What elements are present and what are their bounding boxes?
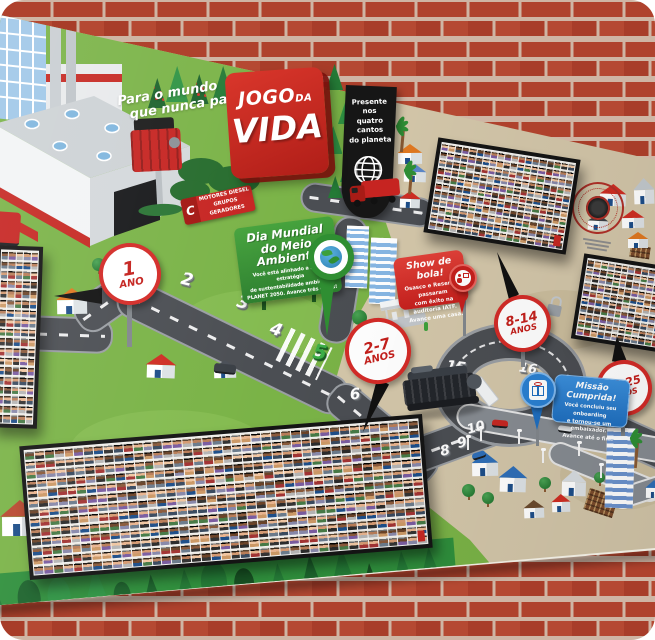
- portrait-photo: [73, 553, 83, 562]
- portrait-photo: [297, 506, 307, 515]
- portrait-photo: [271, 430, 281, 439]
- portrait-photo: [553, 209, 560, 217]
- portrait-photo: [650, 308, 655, 316]
- portrait-photo: [517, 211, 524, 219]
- portrait-photo: [460, 162, 467, 170]
- portrait-photo: [319, 533, 329, 542]
- portrait-photo: [461, 154, 468, 162]
- portrait-photo: [435, 182, 442, 190]
- portrait-photo: [9, 260, 16, 269]
- portrait-photo: [290, 429, 300, 438]
- portrait-photo: [275, 478, 285, 487]
- portrait-photo: [495, 216, 502, 224]
- portrait-photo: [21, 347, 28, 356]
- portrait-photo: [615, 263, 622, 271]
- portrait-photo: [342, 454, 352, 463]
- portrait-photo: [303, 466, 313, 475]
- portrait-photo: [284, 478, 294, 487]
- portrait-photo: [619, 326, 626, 334]
- portrait-photo: [180, 534, 190, 543]
- portrait-photo: [246, 490, 256, 499]
- audit-pin-icon: [449, 264, 477, 292]
- portrait-photo: [597, 331, 604, 339]
- portrait-photo: [55, 457, 65, 466]
- portrait-photo: [187, 495, 197, 504]
- portrait-photo: [102, 550, 112, 559]
- portrait-photo: [538, 166, 545, 174]
- portrait-photo: [324, 474, 334, 483]
- portrait-photo: [468, 155, 475, 163]
- banner-text: Presente nos quatro cantos do planeta: [344, 97, 396, 146]
- portrait-photo: [227, 501, 237, 510]
- portrait-photo: [164, 458, 174, 467]
- portrait-photo: [112, 549, 122, 558]
- portrait-photo: [12, 385, 19, 394]
- event-sign-blue: Missão Cumprida! Você concluiu seu onboa…: [551, 374, 631, 428]
- portrait-photo: [233, 453, 243, 462]
- portrait-photo: [372, 461, 382, 470]
- portrait-photo: [330, 426, 340, 435]
- portrait-photo: [179, 525, 189, 534]
- portrait-photo: [168, 506, 178, 515]
- portrait-photo: [447, 200, 454, 208]
- portrait-photo: [522, 228, 529, 236]
- portrait-photo: [583, 289, 590, 297]
- portrait-photo: [203, 446, 213, 455]
- portrait-photo: [202, 436, 212, 445]
- portrait-photo: [104, 454, 114, 463]
- portrait-photo: [225, 482, 235, 491]
- portrait-photo: [80, 523, 90, 532]
- portrait-photo: [649, 269, 655, 277]
- portrait-photo: [73, 562, 83, 571]
- portrait-photo: [7, 318, 14, 327]
- portrait-photo: [378, 538, 388, 547]
- portrait-photo: [8, 279, 15, 288]
- portrait-photo: [412, 458, 422, 467]
- portrait-photo: [384, 489, 394, 498]
- portrait-photo: [79, 504, 89, 513]
- portrait-photo: [592, 275, 599, 283]
- portrait-photo: [624, 296, 631, 304]
- portrait-photo: [265, 479, 275, 488]
- portrait-photo: [493, 183, 500, 191]
- portrait-photo: [506, 233, 513, 241]
- portrait-photo: [337, 512, 347, 521]
- portrait-photo: [92, 551, 102, 560]
- portrait-photo: [486, 182, 493, 190]
- portrait-photo: [531, 213, 538, 221]
- portrait-photo: [82, 552, 92, 561]
- portrait-photo: [141, 537, 151, 546]
- portrait-photo: [138, 499, 148, 508]
- portrait-photo: [152, 556, 162, 565]
- portrait-photo: [622, 304, 629, 312]
- portrait-photo: [240, 539, 250, 548]
- portrait-photo: [498, 152, 505, 160]
- portrait-photo: [509, 170, 516, 178]
- portrait-photo: [530, 173, 537, 181]
- portrait-photo: [328, 522, 338, 531]
- portrait-photo: [480, 173, 487, 181]
- portrait-photo: [413, 477, 423, 486]
- portrait-photo: [226, 492, 236, 501]
- portrait-photo: [308, 524, 318, 533]
- portrait-photo: [448, 144, 455, 152]
- portrait-photo: [1, 260, 8, 269]
- portrait-photo: [43, 555, 53, 564]
- portrait-photo: [501, 176, 508, 184]
- portrait-photo: [286, 497, 296, 506]
- portrait-photo: [125, 462, 135, 471]
- portrait-photo: [84, 455, 94, 464]
- portrait-photo: [249, 529, 259, 538]
- portrait-photo: [79, 513, 89, 522]
- portrait-photo: [553, 169, 560, 177]
- portrait-photo: [440, 199, 447, 207]
- portrait-photo: [442, 183, 449, 191]
- portrait-photo: [614, 310, 621, 318]
- portrait-photo: [335, 493, 345, 502]
- portrait-photo: [32, 537, 42, 546]
- portrait-photo: [153, 450, 163, 459]
- portrait-photo: [463, 146, 470, 154]
- portrait-photo: [260, 547, 270, 556]
- portrait-photo: [343, 463, 353, 472]
- portrait-photo: [15, 280, 22, 289]
- portrait-photo: [537, 222, 544, 230]
- portrait-photo: [27, 386, 34, 395]
- portrait-photo: [244, 471, 254, 480]
- portrait-photo: [614, 271, 621, 279]
- portrait-photo: [109, 511, 119, 520]
- portrait-photo: [347, 511, 357, 520]
- portrait-photo: [322, 455, 332, 464]
- portrait-photo: [200, 533, 210, 542]
- portrait-photo: [97, 493, 107, 502]
- portrait-photo: [191, 553, 201, 562]
- portrait-photo: [545, 215, 552, 223]
- portrait-photo: [14, 309, 21, 318]
- portrait-photo: [5, 376, 12, 385]
- portrait-photo: [33, 556, 43, 565]
- gift-pin-icon: [520, 372, 556, 408]
- portrait-photo: [147, 498, 157, 507]
- portrait-photo: [5, 356, 12, 365]
- portrait-photo: [389, 421, 399, 430]
- portrait-photo: [473, 172, 480, 180]
- portrait-photo: [132, 548, 142, 557]
- portrait-photo: [555, 201, 562, 209]
- portrait-photo: [546, 208, 553, 216]
- portrait-photo: [444, 175, 451, 183]
- portrait-photo: [25, 460, 35, 469]
- portrait-photo: [462, 194, 469, 202]
- portrait-photo: [363, 471, 373, 480]
- portrait-photo: [140, 528, 150, 537]
- portrait-photo: [403, 468, 413, 477]
- portrait-photo: [292, 448, 302, 457]
- portrait-photo: [206, 484, 216, 493]
- portrait-photo: [253, 461, 263, 470]
- portrait-photo: [414, 486, 424, 495]
- portrait-photo: [374, 480, 384, 489]
- portrait-photo: [163, 449, 173, 458]
- streetlight-icon: [480, 429, 482, 441]
- portrait-photo: [28, 338, 35, 347]
- portrait-photo: [173, 448, 183, 457]
- portrait-photo: [15, 289, 22, 298]
- portrait-photo: [257, 509, 267, 518]
- portrait-photo: [144, 460, 154, 469]
- portrait-photo: [300, 428, 310, 437]
- portrait-photo: [321, 446, 331, 455]
- portrait-photo: [460, 210, 467, 218]
- portrait-photo: [498, 192, 505, 200]
- portrait-photo: [128, 509, 138, 518]
- portrait-photo: [440, 151, 447, 159]
- portrait-photo: [166, 478, 176, 487]
- portrait-photo: [41, 536, 51, 545]
- portrait-photo: [325, 494, 335, 503]
- portrait-photo: [185, 476, 195, 485]
- portrait-photo: [552, 217, 559, 225]
- portrait-photo: [605, 277, 612, 285]
- tree-icon: [326, 64, 343, 90]
- portrait-photo: [500, 184, 507, 192]
- portrait-photo: [637, 298, 644, 306]
- tree-icon: [462, 484, 475, 497]
- portrait-photo: [383, 470, 393, 479]
- portrait-photo: [178, 515, 188, 524]
- portrait-photo: [170, 535, 180, 544]
- portrait-photo: [242, 442, 252, 451]
- portrait-photo: [270, 546, 280, 555]
- portrait-photo: [436, 222, 443, 230]
- portrait-photo: [27, 367, 34, 376]
- portrait-photo: [219, 521, 229, 530]
- portrait-photo: [353, 472, 363, 481]
- portrait-photo: [134, 451, 144, 460]
- portrait-photo: [568, 163, 575, 171]
- portrait-photo: [260, 537, 270, 546]
- portrait-photo: [20, 376, 27, 385]
- portrait-photo: [481, 165, 488, 173]
- portrait-photo: [174, 458, 184, 467]
- portrait-photo: [550, 184, 557, 192]
- portrait-photo: [516, 171, 523, 179]
- portrait-photo: [580, 305, 587, 313]
- portrait-photo: [184, 457, 194, 466]
- portrait-photo: [504, 201, 511, 209]
- portrait-photo: [0, 366, 4, 375]
- portrait-photo: [643, 307, 650, 315]
- portrait-photo: [303, 457, 313, 466]
- portrait-photo: [395, 498, 405, 507]
- portrait-photo: [34, 565, 44, 574]
- portrait-photo: [284, 468, 294, 477]
- portrait-photo: [169, 525, 179, 534]
- portrait-photo: [21, 338, 28, 347]
- portrait-photo: [150, 527, 160, 536]
- portrait-photo: [390, 440, 400, 449]
- portrait-photo: [565, 179, 572, 187]
- portrait-photo: [263, 460, 273, 469]
- portrait-photo: [188, 505, 198, 514]
- portrait-photo: [491, 151, 498, 159]
- portrait-photo: [16, 261, 23, 270]
- portrait-photo: [604, 285, 611, 293]
- portrait-photo: [549, 192, 556, 200]
- portrait-photo: [434, 190, 441, 198]
- portrait-photo: [40, 517, 50, 526]
- portrait-photo: [219, 531, 229, 540]
- portrait-photo: [517, 163, 524, 171]
- portrait-photo: [519, 155, 526, 163]
- portrait-photo: [63, 563, 73, 572]
- portrait-photo: [621, 311, 628, 319]
- portrait-photo: [234, 462, 244, 471]
- portrait-photo: [264, 470, 274, 479]
- portrait-photo: [251, 432, 261, 441]
- portrait-photo: [12, 376, 19, 385]
- portrait-photo: [259, 528, 269, 537]
- portrait-photo: [86, 474, 96, 483]
- portrait-photo: [521, 188, 528, 196]
- portrait-photo: [593, 268, 600, 276]
- portrait-photo: [31, 527, 41, 536]
- portrait-photo: [70, 524, 80, 533]
- portrait-photo: [0, 298, 7, 307]
- portrait-photo: [380, 431, 390, 440]
- portrait-photo: [196, 485, 206, 494]
- portrait-photo: [272, 440, 282, 449]
- portrait-photo: [188, 514, 198, 523]
- portrait-photo: [13, 337, 20, 346]
- portrait-photo: [177, 496, 187, 505]
- portrait-photo: [379, 422, 389, 431]
- portrait-photo: [607, 270, 614, 278]
- portrait-photo: [638, 291, 645, 299]
- portrait-photo: [590, 330, 597, 338]
- portrait-photo: [540, 159, 547, 167]
- portrait-photo: [531, 165, 538, 173]
- portrait-photo: [126, 481, 136, 490]
- portrait-photo: [641, 275, 648, 283]
- portrait-photo: [258, 518, 268, 527]
- portrait-photo: [340, 435, 350, 444]
- portrait-photo: [67, 485, 77, 494]
- portrait-photo: [482, 205, 489, 213]
- portrait-photo: [640, 283, 647, 291]
- portrait-photo: [28, 489, 38, 498]
- portrait-photo: [130, 529, 140, 538]
- portrait-photo: [319, 542, 329, 551]
- portrait-photo: [645, 292, 652, 300]
- portrait-photo: [200, 542, 210, 551]
- portrait-photo: [241, 549, 251, 558]
- portrait-photo: [369, 423, 379, 432]
- portrait-photo: [484, 150, 491, 158]
- portrait-photo: [437, 174, 444, 182]
- portrait-photo: [89, 513, 99, 522]
- portrait-photo: [146, 479, 156, 488]
- portrait-photo: [47, 487, 57, 496]
- portrait-photo: [27, 479, 37, 488]
- portrait-photo: [14, 318, 21, 327]
- portrait-photo: [332, 454, 342, 463]
- portrait-photo: [113, 559, 123, 568]
- portrait-photo: [634, 274, 641, 282]
- portrait-photo: [333, 464, 343, 473]
- portrait-photo: [350, 434, 360, 443]
- photo-collage-left: [0, 245, 43, 428]
- portrait-photo: [577, 327, 584, 335]
- portrait-photo: [156, 478, 166, 487]
- portrait-photo: [14, 328, 21, 337]
- portrait-photo: [293, 458, 303, 467]
- portrait-photo: [532, 205, 539, 213]
- portrait-photo: [630, 297, 637, 305]
- portrait-photo: [49, 506, 59, 515]
- portrait-photo: [221, 550, 231, 559]
- portrait-photo: [39, 507, 49, 516]
- portrait-photo: [58, 496, 68, 505]
- portrait-photo: [564, 186, 571, 194]
- portrait-photo: [508, 226, 515, 234]
- portrait-photo: [591, 283, 598, 291]
- portrait-photo: [3, 414, 10, 423]
- portrait-photo: [612, 279, 619, 287]
- portrait-photo: [347, 521, 357, 530]
- portrait-photo: [476, 197, 483, 205]
- portrait-photo: [367, 519, 377, 528]
- portrait-photo: [325, 484, 335, 493]
- portrait-photo: [23, 270, 30, 279]
- portrait-photo: [132, 557, 142, 566]
- portrait-photo: [488, 166, 495, 174]
- portrait-photo: [534, 198, 541, 206]
- portrait-photo: [281, 430, 291, 439]
- portrait-photo: [295, 486, 305, 495]
- portrait-photo: [153, 440, 163, 449]
- portrait-photo: [461, 202, 468, 210]
- portrait-photo: [175, 477, 185, 486]
- portrait-photo: [487, 174, 494, 182]
- portrait-photo: [21, 328, 28, 337]
- portrait-photo: [300, 544, 310, 553]
- portrait-photo: [172, 554, 182, 563]
- portrait-photo: [15, 299, 22, 308]
- badge-label: ANO: [119, 276, 145, 290]
- portrait-photo: [20, 357, 27, 366]
- portrait-photo: [501, 224, 508, 232]
- portrait-photo: [591, 322, 598, 330]
- portrait-photo: [496, 208, 503, 216]
- portrait-photo: [278, 526, 288, 535]
- portrait-photo: [539, 207, 546, 215]
- portrait-photo: [601, 308, 608, 316]
- portrait-photo: [60, 515, 70, 524]
- portrait-photo: [6, 328, 13, 337]
- portrait-photo: [605, 324, 612, 332]
- portrait-photo: [0, 327, 6, 336]
- portrait-photo: [514, 187, 521, 195]
- portrait-photo: [6, 347, 13, 356]
- portrait-photo: [508, 178, 515, 186]
- portrait-photo: [30, 290, 37, 299]
- portrait-photo: [362, 462, 372, 471]
